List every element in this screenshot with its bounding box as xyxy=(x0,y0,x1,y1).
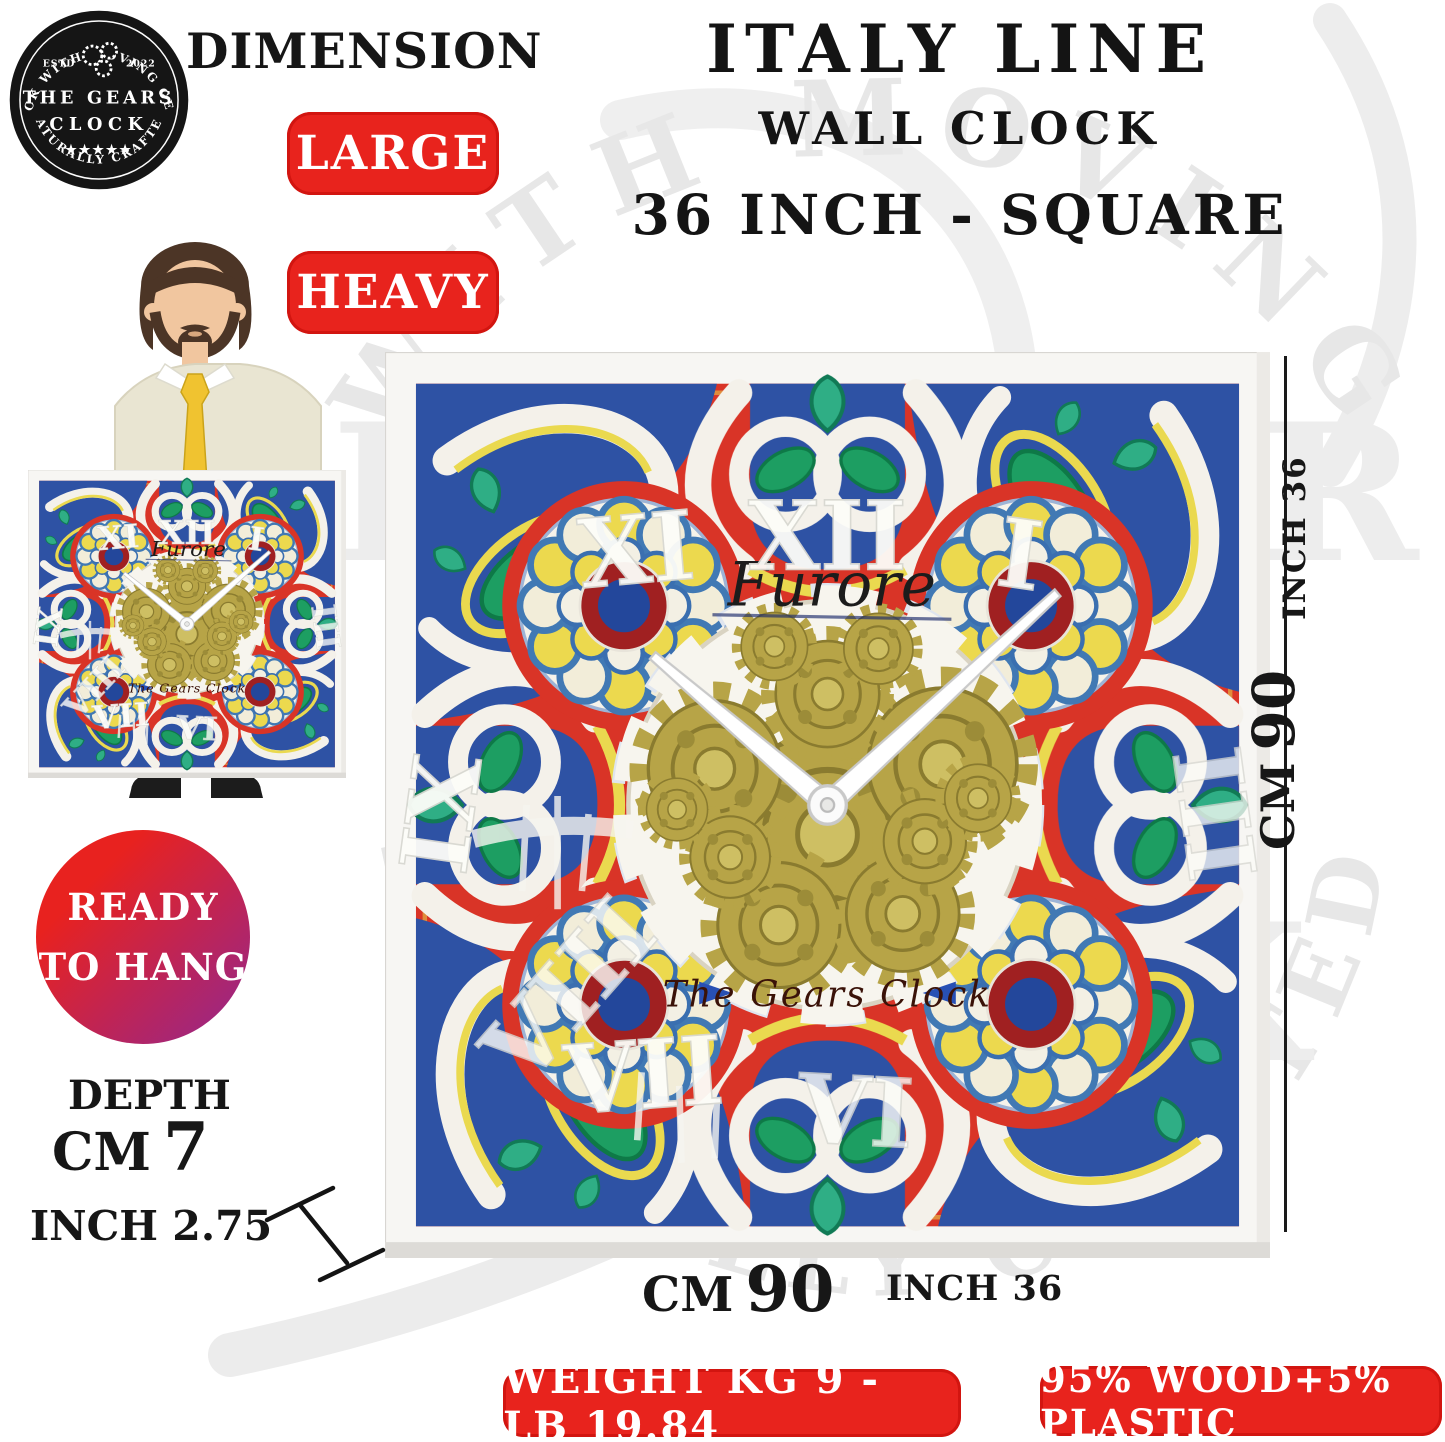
logo-name-1: THE GEARS xyxy=(23,88,176,109)
ready-line2: TO HANG xyxy=(39,945,248,989)
ready-to-hang-badge: READY TO HANG xyxy=(36,830,250,1044)
product-clock-photo xyxy=(385,352,1270,1258)
depth-cm-value: 7 xyxy=(163,1108,209,1186)
bottom-cm-label: CM 90 xyxy=(642,1252,834,1327)
bottom-inch-label: INCH 36 xyxy=(886,1268,1063,1309)
brand-logo-badge: CLOCK WITH MOVING GEARS NATURALLY CRAFTE… xyxy=(6,4,192,196)
depth-bracket xyxy=(255,1180,395,1330)
product-infographic: WITH MOVING NATURALLY CRAFTED THE GEARS … xyxy=(0,0,1445,1442)
right-inch-label: INCH 36 xyxy=(1277,480,1313,620)
right-cm-value: 90 xyxy=(1240,670,1308,751)
logo-year: 2022 xyxy=(126,59,156,70)
dimension-heading: DIMENSION xyxy=(186,22,543,80)
product-title-line1: ITALY LINE xyxy=(620,10,1300,88)
product-title-line2: WALL CLOCK xyxy=(620,102,1300,155)
ready-line1: READY xyxy=(67,885,218,929)
bottom-cm-unit: CM xyxy=(642,1267,733,1323)
heavy-badge: HEAVY xyxy=(287,251,499,334)
large-badge: LARGE xyxy=(287,112,499,195)
right-cm-label: CM 90 xyxy=(1240,694,1298,850)
weight-badge: WEIGHT KG 9 - LB 19.84 xyxy=(503,1369,961,1437)
right-cm-unit: CM xyxy=(1251,762,1305,850)
logo-estd: ESTD xyxy=(43,59,76,70)
material-badge: 95% WOOD+5% PLASTIC xyxy=(1040,1366,1442,1436)
bottom-cm-value: 90 xyxy=(745,1252,834,1327)
depth-cm: CM 7 xyxy=(52,1108,209,1186)
depth-inch: INCH 2.75 xyxy=(30,1202,272,1250)
held-clock-thumbnail xyxy=(28,470,346,778)
logo-stars: ★★★★★ xyxy=(65,143,133,158)
logo-name-2: CLOCK xyxy=(49,114,148,135)
product-title-line3: 36 INCH - SQUARE xyxy=(620,182,1300,247)
depth-cm-unit: CM xyxy=(52,1122,151,1183)
